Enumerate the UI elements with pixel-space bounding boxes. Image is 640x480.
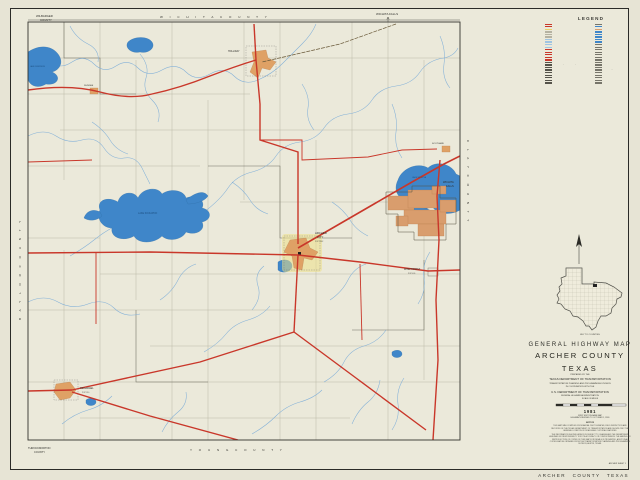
label-throckmorton-2: COUNTY xyxy=(34,450,45,454)
label-holliday: HOLLIDAY xyxy=(228,50,240,53)
texas-inset: KEY TO COUNTIES xyxy=(557,268,622,336)
pond-se xyxy=(392,350,402,357)
map-series-title: GENERAL HIGHWAY MAP xyxy=(522,342,638,348)
usdot-line: U.S. DEPARTMENT OF TRANSPORTATION xyxy=(522,390,638,394)
town-windthorst xyxy=(428,268,438,276)
label-young-county: Y O U N G C O U N T Y xyxy=(190,448,285,452)
notice-paragraph-2: THE INFORMATION SHOWN HEREON IS SUBJECT … xyxy=(549,434,631,446)
legend-symbol xyxy=(545,82,552,83)
town-holliday xyxy=(250,50,276,78)
inset-caption: KEY TO COUNTIES xyxy=(580,334,600,336)
label-lake-kickapoo: LAKE KICKAPOO xyxy=(138,212,157,215)
map-sheet: WILBARGER COUNTY W I C H I T A C O U N T… xyxy=(0,0,640,480)
edition-line-2: HIGHWAYS REVISED TO OCTOBER 1, 1980 xyxy=(540,417,640,419)
label-wichita-falls-city: WICHITA xyxy=(443,180,454,184)
label-archer-city-2: CITY xyxy=(317,235,324,239)
scale-label: SCALE IN MILES xyxy=(540,398,640,400)
small-lake-north xyxy=(127,38,153,53)
label-throckmorton: THROCKMORTON xyxy=(28,446,51,450)
label-dundee: DUNDEE xyxy=(84,85,94,87)
notice-heading: NOTICE xyxy=(549,422,631,424)
fhwa-line: FEDERAL HIGHWAY ADMINISTRATION xyxy=(522,395,638,397)
label-baylor-county: B A Y L O R C O U N T Y xyxy=(18,218,22,320)
title-block: GENERAL HIGHWAY MAP ARCHER COUNTY TEXAS … xyxy=(522,342,638,397)
label-wichita-county: W I C H I T A C O U N T Y xyxy=(160,15,270,19)
county-map: WILBARGER COUNTY W I C H I T A C O U N T… xyxy=(0,0,640,480)
legend-row: SURVEY LINE xyxy=(545,82,595,85)
label-megargel: MEGARGEL xyxy=(80,387,94,390)
label-scotland: SCOTLAND xyxy=(432,142,444,145)
legend-row: OTHER BUILDING xyxy=(595,82,637,85)
dept-line: TEXAS DEPARTMENT OF TRANSPORTATION xyxy=(522,377,638,381)
railroad-line xyxy=(262,24,396,62)
label-clay-county: C L A Y C O U N T Y xyxy=(466,140,470,224)
urban-area-layer xyxy=(386,186,456,240)
label-windthorst: WINDTHORST xyxy=(404,268,421,271)
prepared-by-line: PREPARED BY THE xyxy=(522,374,638,376)
label-windthorst-pop: POP 409 xyxy=(408,273,415,275)
town-scotland xyxy=(442,146,450,152)
legend-label: SURVEY LINE xyxy=(553,82,565,84)
state-title: TEXAS xyxy=(522,364,638,373)
legend: LEGEND INTERSTATE HIGHWAYU.S. NUMBERED H… xyxy=(545,16,637,84)
division-line: TRANSPORTATION PLANNING AND PROGRAMMING … xyxy=(522,383,638,385)
label-wichita-falls-direction: WICHITA FALLS xyxy=(376,12,398,16)
label-wichita-falls-city-2: FALLS xyxy=(446,184,454,188)
north-arrow xyxy=(576,234,582,264)
legend-symbol xyxy=(595,82,602,83)
county-title: ARCHER COUNTY xyxy=(522,351,638,360)
sheet-number-label: ARCHER SHEET 1 xyxy=(560,463,626,465)
edition-year: 1981 xyxy=(540,409,640,414)
coop-line: IN COOPERATION WITH THE xyxy=(522,386,638,388)
legend-column-left: INTERSTATE HIGHWAYU.S. NUMBERED HIGHWAYS… xyxy=(545,23,595,84)
legend-column-right: COUNTY SEATINCORPORATED CITY OR TOWNURBA… xyxy=(595,23,637,84)
label-archer-pop: POP 1862 xyxy=(315,241,323,243)
label-wilbarger-2: COUNTY xyxy=(40,18,52,22)
footer-county-name: ARCHER COUNTY TEXAS xyxy=(400,473,629,478)
scale-bar xyxy=(556,404,626,407)
direction-arrow xyxy=(387,17,389,22)
legend-title: LEGEND xyxy=(545,16,637,21)
label-megargel-pop: POP 310 xyxy=(82,392,89,394)
legend-label: OTHER BUILDING xyxy=(603,82,619,84)
label-lake-wichita: LAKE WICHITA xyxy=(412,176,427,179)
inset-county-marker xyxy=(593,284,597,287)
scale-block: SCALE IN MILES xyxy=(540,398,640,400)
notice-paragraph-1: THIS MAP WAS COMPILED FROM AERIAL PHOTOG… xyxy=(549,425,631,432)
notice-block: NOTICE THIS MAP WAS COMPILED FROM AERIAL… xyxy=(549,422,631,446)
edition-block: 1981 FIRST EDITION BASE MAP HIGHWAYS REV… xyxy=(540,409,640,419)
label-lake-diversion: LAKE DIVERSION xyxy=(30,65,46,68)
